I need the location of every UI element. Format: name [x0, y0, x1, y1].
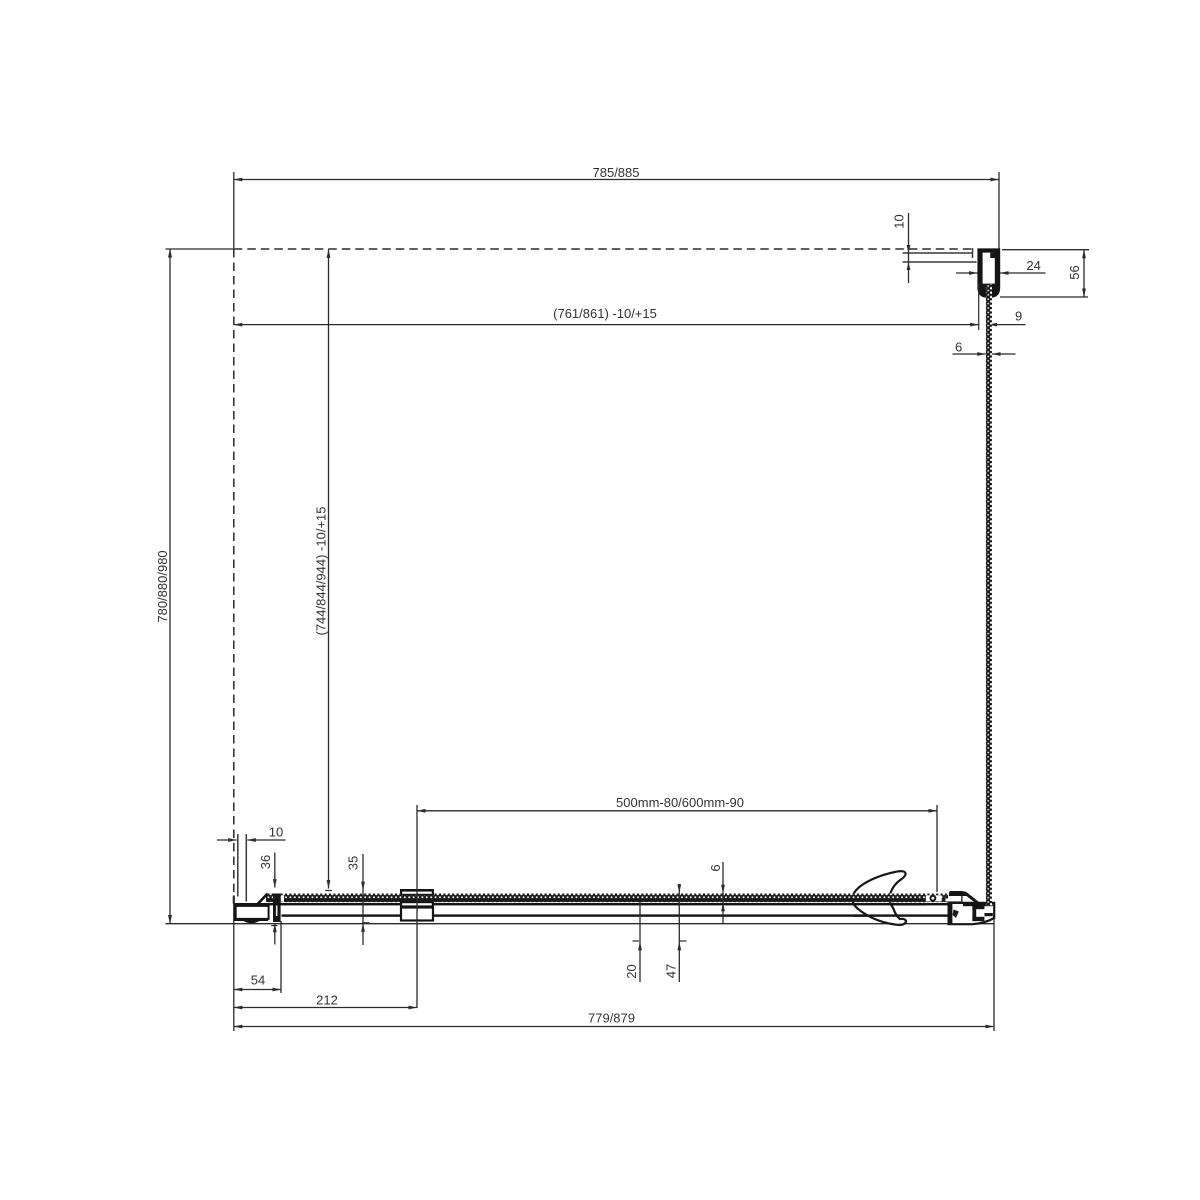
svg-text:779/879: 779/879	[588, 1011, 635, 1026]
svg-text:10: 10	[892, 214, 907, 228]
svg-text:(761/861) -10/+15: (761/861) -10/+15	[553, 306, 657, 321]
svg-text:9: 9	[1015, 309, 1022, 324]
svg-text:6: 6	[955, 340, 962, 355]
svg-text:10: 10	[269, 825, 283, 840]
svg-text:20: 20	[624, 964, 639, 978]
svg-text:54: 54	[251, 973, 265, 988]
svg-text:24: 24	[1026, 258, 1040, 273]
svg-text:56: 56	[1067, 265, 1082, 279]
svg-text:780/880/980: 780/880/980	[155, 550, 170, 622]
svg-text:47: 47	[664, 964, 679, 978]
svg-text:6: 6	[708, 864, 723, 871]
svg-text:212: 212	[316, 993, 338, 1008]
svg-text:35: 35	[346, 856, 361, 870]
svg-text:(744/844/944) -10/+15: (744/844/944) -10/+15	[314, 506, 329, 635]
svg-text:36: 36	[258, 855, 273, 869]
svg-text:785/885: 785/885	[593, 165, 640, 180]
svg-text:500mm-80/600mm-90: 500mm-80/600mm-90	[616, 795, 744, 810]
